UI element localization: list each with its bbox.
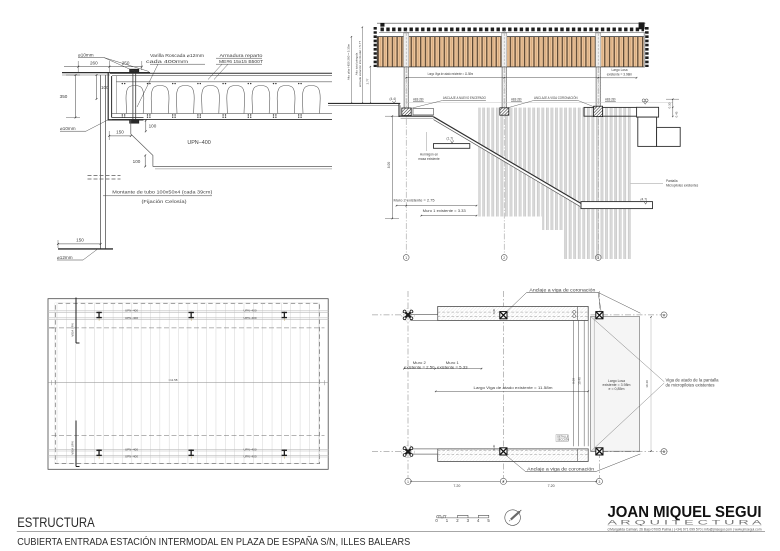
svg-text:entrada estación intermodal =: entrada estación intermodal = 5.77 — [358, 41, 362, 88]
svg-text:UPN–400: UPN–400 — [243, 447, 256, 451]
svg-text:UPN–400: UPN–400 — [125, 316, 138, 320]
svg-text:10.40: 10.40 — [578, 377, 582, 385]
svg-text:Micropilotes existentes: Micropilotes existentes — [666, 183, 699, 187]
svg-text:0.30: 0.30 — [668, 102, 672, 108]
svg-text:3: 3 — [597, 256, 599, 260]
svg-text:HEB 280: HEB 280 — [605, 97, 616, 101]
svg-text:Alto pilar HEB 280 = 5.35m: Alto pilar HEB 280 = 5.35m — [346, 43, 350, 80]
svg-text:Muro 1 existente = 3.33: Muro 1 existente = 3.33 — [423, 209, 466, 213]
svg-text:7.20: 7.20 — [453, 484, 460, 488]
svg-text:0.45: 0.45 — [675, 111, 679, 117]
svg-text:(4.7): (4.7) — [641, 198, 648, 202]
svg-text:CUBIERTA ENTRADA ESTACIÓN INTE: CUBIERTA ENTRADA ESTACIÓN INTERMODAL EN … — [17, 535, 410, 548]
svg-text:0.30: 0.30 — [492, 444, 496, 450]
svg-text:0.30: 0.30 — [492, 308, 496, 314]
svg-text:1: 1 — [407, 480, 409, 484]
svg-text:2.77: 2.77 — [365, 78, 369, 84]
svg-text:ESTRUCTURA: ESTRUCTURA — [17, 515, 95, 531]
svg-text:JOAN MIQUEL SEGUI: JOAN MIQUEL SEGUI — [608, 504, 762, 521]
svg-text:100: 100 — [149, 124, 157, 129]
svg-text:UPN–400: UPN–400 — [125, 455, 138, 459]
svg-text:VIGA UPN: VIGA UPN — [71, 441, 75, 454]
svg-text:ANCLAJE A NUEVO ENCEPADO: ANCLAJE A NUEVO ENCEPADO — [443, 96, 486, 100]
svg-text:⌀10mm: ⌀10mm — [60, 126, 76, 131]
svg-text:e = 0,85m: e = 0,85m — [609, 387, 625, 391]
svg-text:(1.7): (1.7) — [447, 136, 454, 140]
svg-text:Anclaje a viga de coronación: Anclaje a viga de coronación — [527, 466, 594, 471]
svg-text:Muro 2: Muro 2 — [413, 361, 426, 365]
svg-text:≈11.58: ≈11.58 — [169, 378, 178, 382]
svg-text:VIGA UPN: VIGA UPN — [71, 323, 75, 336]
svg-text:1: 1 — [405, 256, 407, 260]
svg-text:UPN–400: UPN–400 — [243, 309, 256, 313]
svg-text:UPN–400: UPN–400 — [125, 447, 138, 451]
svg-text:100: 100 — [133, 159, 141, 164]
svg-text:2: 2 — [503, 256, 505, 260]
svg-text:existente = 3.98m: existente = 3.98m — [607, 72, 633, 76]
svg-text:Varilla Roscada ⌀12mm: Varilla Roscada ⌀12mm — [150, 53, 204, 58]
svg-text:Largo Viga de atado existente: Largo Viga de atado existente = 11.58m — [428, 72, 474, 76]
svg-text:10.40: 10.40 — [645, 380, 649, 388]
svg-text:Montante de tubo 100x50x4 (cad: Montante de tubo 100x50x4 (cada 39cm) — [112, 190, 213, 195]
svg-text:150: 150 — [116, 130, 124, 135]
svg-text:c/Margalida Caimari, 26 Bajo 0: c/Margalida Caimari, 26 Bajo 07005 Palma… — [608, 528, 762, 532]
svg-text:150: 150 — [76, 238, 84, 243]
svg-text:Largo Viga de atado existente: Largo Viga de atado existente = 11.58m — [474, 386, 553, 390]
svg-text:A R Q U I T E C T U R A: A R Q U I T E C T U R A — [608, 520, 762, 526]
svg-text:masa existente: masa existente — [418, 157, 440, 161]
svg-text:UPN–400: UPN–400 — [243, 455, 256, 459]
svg-text:Anclaje a viga de coronación: Anclaje a viga de coronación — [529, 287, 595, 292]
svg-text:Muro 2 existente = 2.75: Muro 2 existente = 2.75 — [394, 199, 435, 203]
svg-text:260: 260 — [90, 61, 98, 66]
svg-text:⌀10mm: ⌀10mm — [78, 52, 94, 57]
svg-text:ANCLAJE A VIGA CORONACIÓN: ANCLAJE A VIGA CORONACIÓN — [534, 95, 578, 100]
svg-text:350: 350 — [60, 94, 68, 99]
svg-text:Muro 1: Muro 1 — [446, 361, 459, 365]
svg-text:HEB 280: HEB 280 — [511, 97, 522, 101]
svg-text:HEB 280: HEB 280 — [413, 97, 424, 101]
svg-text:UPN–400: UPN–400 — [243, 316, 256, 320]
svg-text:9.69: 9.69 — [572, 378, 576, 384]
svg-text:(4.4): (4.4) — [390, 97, 397, 101]
svg-text:ME#6 15x15 B500T: ME#6 15x15 B500T — [219, 59, 263, 64]
svg-text:UPN–400: UPN–400 — [187, 140, 210, 146]
svg-text:cada 400mm: cada 400mm — [146, 59, 188, 64]
svg-text:100: 100 — [101, 85, 109, 90]
svg-text:3: 3 — [598, 480, 600, 484]
svg-text:8.00: 8.00 — [387, 162, 391, 169]
svg-text:250: 250 — [122, 61, 130, 66]
svg-text:Armadura reparto: Armadura reparto — [220, 53, 264, 58]
svg-text:7.20: 7.20 — [548, 484, 555, 488]
svg-text:de micropilotes existentes: de micropilotes existentes — [666, 383, 715, 388]
svg-text:(Fijación Celosía): (Fijación Celosía) — [142, 199, 188, 204]
svg-text:UPN–400: UPN–400 — [125, 309, 138, 313]
svg-text:⌀12mm: ⌀12mm — [57, 255, 73, 260]
